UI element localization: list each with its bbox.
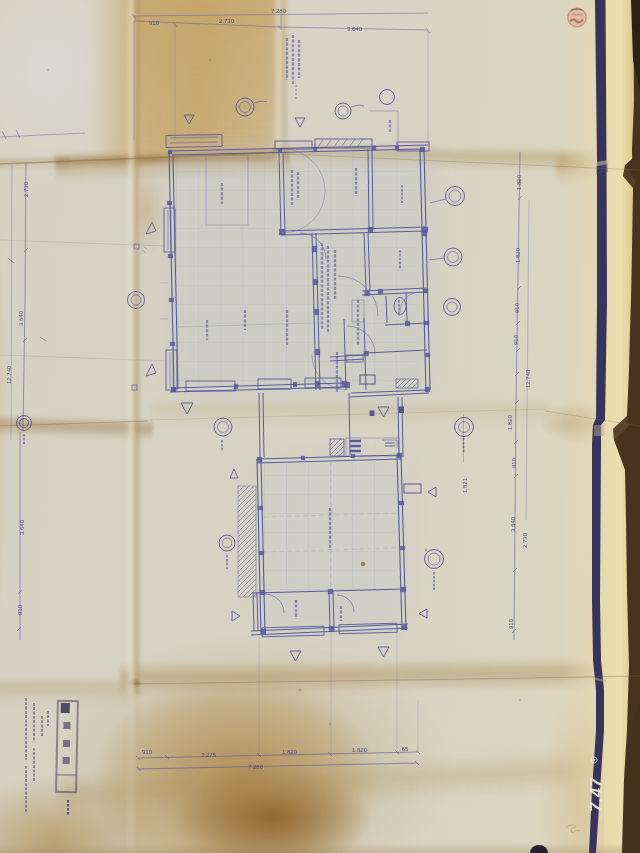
- svg-text:1.820: 1.820: [352, 747, 368, 753]
- svg-text:7.280: 7.280: [271, 8, 287, 14]
- svg-text:910: 910: [149, 20, 160, 26]
- svg-text:2.730: 2.730: [219, 18, 235, 24]
- svg-text:1.821: 1.821: [462, 477, 468, 493]
- svg-text:1.820: 1.820: [516, 174, 522, 190]
- svg-text:910: 910: [142, 749, 153, 755]
- svg-text:7.280: 7.280: [248, 764, 264, 770]
- svg-text:910: 910: [17, 604, 23, 615]
- svg-text:1.820: 1.820: [515, 247, 521, 263]
- svg-text:910: 910: [514, 302, 520, 313]
- svg-text:3.640: 3.640: [18, 310, 24, 326]
- svg-text:1.820: 1.820: [282, 749, 298, 755]
- svg-text:12.740: 12.740: [525, 369, 531, 388]
- svg-text:910: 910: [508, 618, 514, 629]
- svg-text:1.820: 1.820: [507, 414, 513, 430]
- svg-text:2.730: 2.730: [522, 532, 528, 548]
- svg-text:12.740: 12.740: [6, 365, 12, 384]
- svg-text:910: 910: [511, 457, 517, 468]
- svg-text:7.47: 7.47: [587, 777, 605, 812]
- svg-text:3.640: 3.640: [347, 26, 363, 32]
- svg-text:.65: .65: [400, 746, 409, 752]
- svg-text:2.275: 2.275: [201, 752, 217, 758]
- svg-text:910: 910: [513, 334, 519, 345]
- svg-text:3.640: 3.640: [510, 516, 516, 532]
- svg-text:2.730: 2.730: [23, 181, 29, 197]
- svg-text:R: R: [592, 758, 597, 762]
- svg-text:3.640: 3.640: [19, 519, 25, 535]
